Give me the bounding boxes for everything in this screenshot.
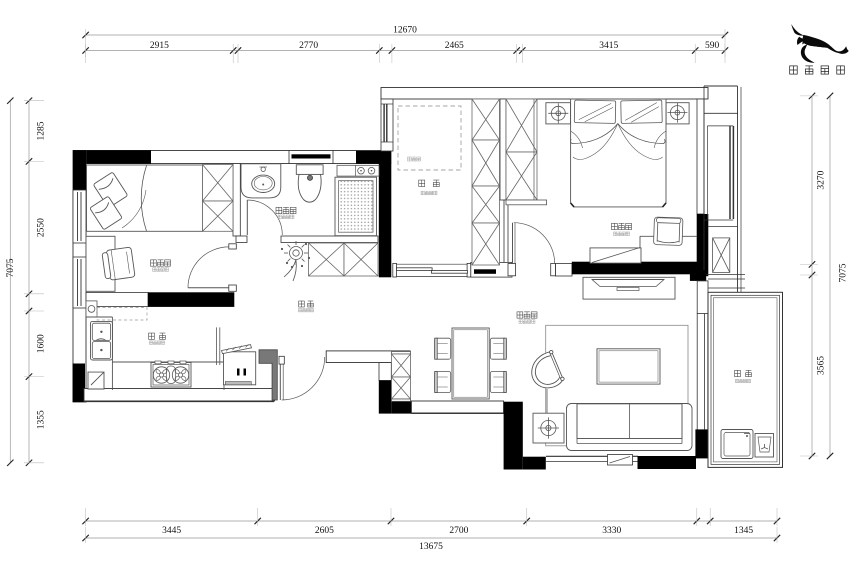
svg-text:13675: 13675 (419, 542, 443, 552)
svg-text:2550: 2550 (36, 218, 46, 237)
svg-text:3330: 3330 (602, 526, 621, 536)
svg-text:2915: 2915 (150, 41, 169, 51)
svg-text:590: 590 (705, 41, 720, 51)
svg-text:2700: 2700 (449, 526, 468, 536)
svg-text:2605: 2605 (315, 526, 334, 536)
svg-text:7075: 7075 (6, 258, 16, 277)
svg-text:3270: 3270 (817, 170, 827, 189)
svg-text:12670: 12670 (393, 26, 417, 36)
svg-text:2465: 2465 (445, 41, 464, 51)
svg-text:3415: 3415 (599, 41, 618, 51)
svg-text:3445: 3445 (162, 526, 181, 536)
svg-text:1345: 1345 (734, 526, 753, 536)
svg-text:1285: 1285 (36, 121, 46, 140)
svg-text:2770: 2770 (299, 41, 318, 51)
svg-text:3565: 3565 (817, 356, 827, 375)
svg-text:7075: 7075 (839, 263, 849, 282)
svg-text:1600: 1600 (36, 334, 46, 353)
svg-text:1355: 1355 (36, 410, 46, 429)
